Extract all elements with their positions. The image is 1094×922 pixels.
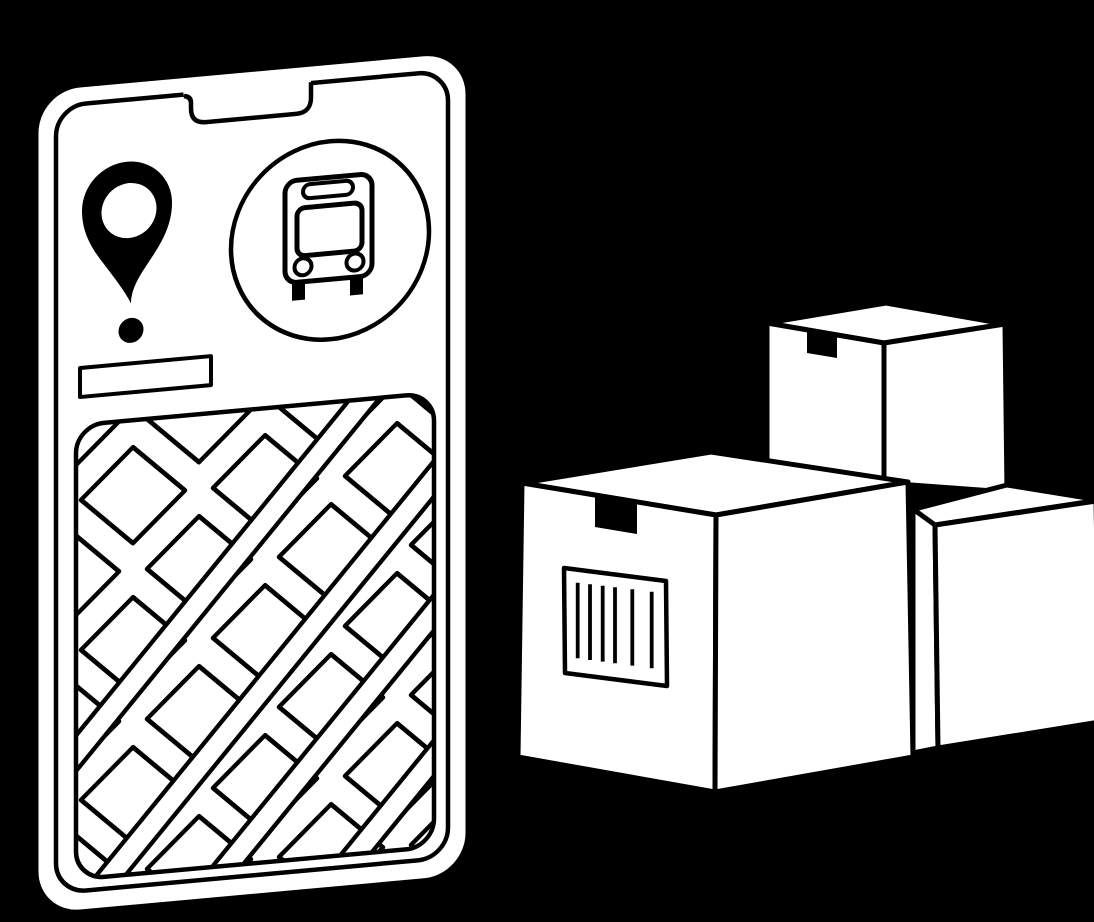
smartphone bbox=[10, 46, 515, 922]
delivery-illustration bbox=[0, 0, 1094, 922]
bus-headlight-left bbox=[295, 257, 312, 276]
box-right-front-face bbox=[935, 501, 1094, 748]
illustration-stage bbox=[0, 0, 1094, 922]
bus-headlight-right bbox=[347, 253, 364, 272]
barcode-label bbox=[564, 568, 667, 686]
cardboard-box-front bbox=[518, 452, 913, 792]
box-front-right-face bbox=[715, 482, 913, 792]
box-back-right-face bbox=[884, 324, 1007, 492]
